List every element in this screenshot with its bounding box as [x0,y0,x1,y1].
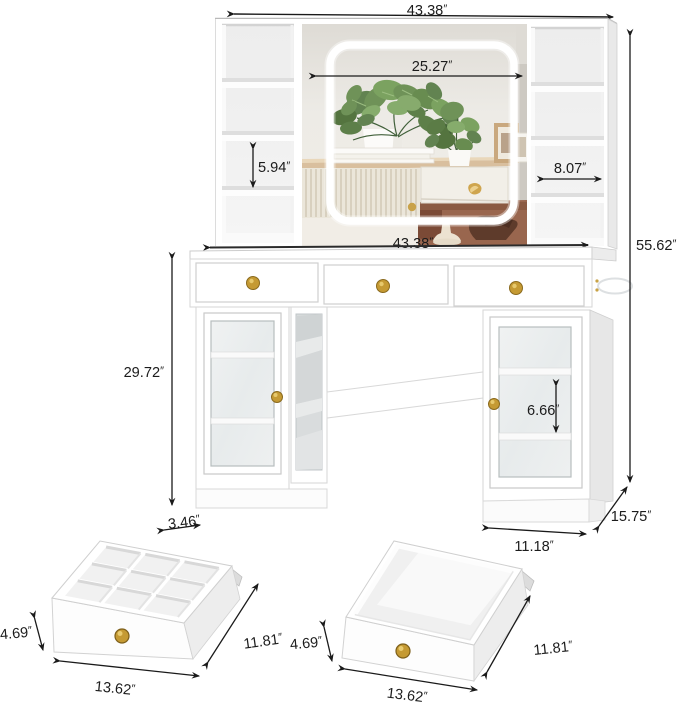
svg-text:15.75″: 15.75″ [611,509,652,525]
svg-text:43.38″: 43.38″ [407,3,448,19]
svg-text:6.66″: 6.66″ [527,403,559,419]
svg-text:8.07″: 8.07″ [554,161,586,177]
svg-text:55.62″: 55.62″ [636,238,677,254]
svg-text:29.72″: 29.72″ [124,365,165,381]
svg-text:11.18″: 11.18″ [514,539,553,555]
svg-text:5.94″: 5.94″ [258,160,290,176]
svg-text:25.27″: 25.27″ [412,59,453,75]
svg-text:4.69″: 4.69″ [289,635,323,654]
svg-text:4.69″: 4.69″ [0,625,33,644]
